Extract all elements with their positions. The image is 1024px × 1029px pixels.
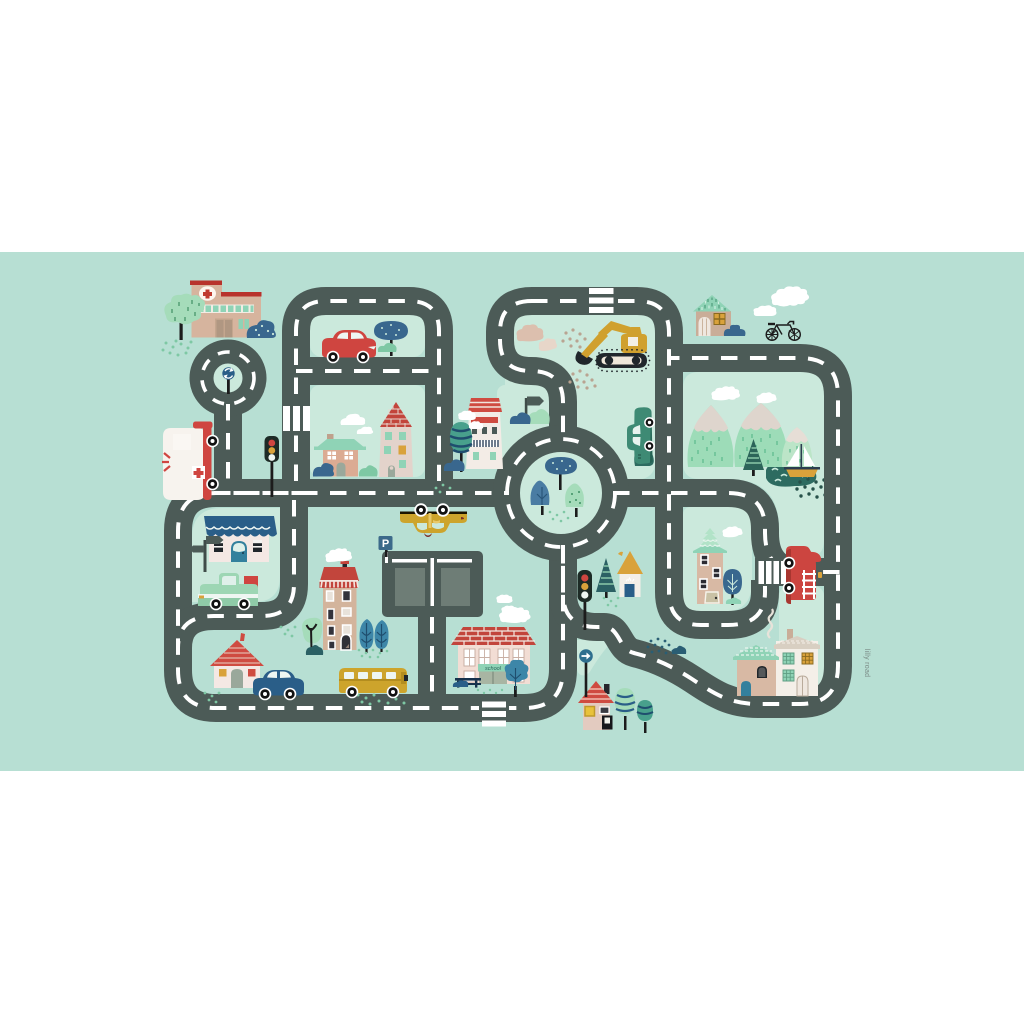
svg-text:lilly road: lilly road — [863, 649, 870, 678]
svg-text:P: P — [382, 538, 389, 550]
svg-text:school: school — [485, 666, 502, 672]
